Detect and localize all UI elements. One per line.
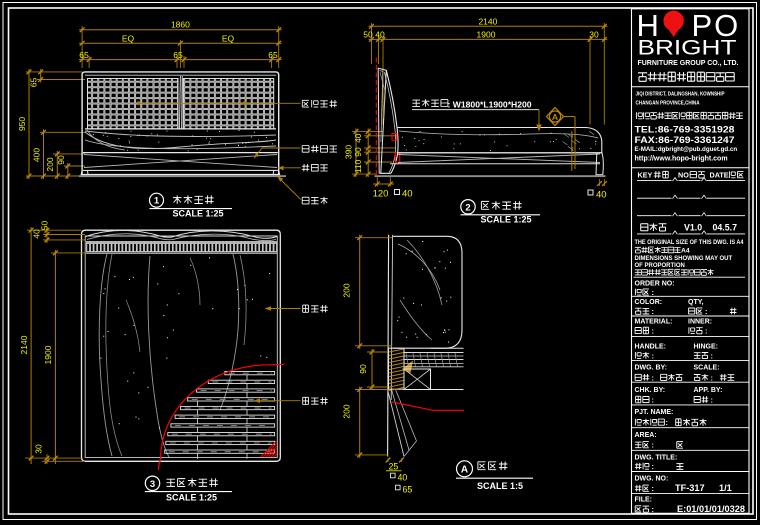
svg-text:65: 65 — [29, 78, 39, 88]
svg-text:400: 400 — [32, 148, 42, 162]
svg-text:SCALE 1:25: SCALE 1:25 — [166, 493, 217, 503]
svg-text::: : — [652, 441, 654, 450]
svg-text:THE ORIGINAL SIZE OF THIS DWG.: THE ORIGINAL SIZE OF THIS DWG. IS A4 — [635, 240, 745, 246]
svg-text:3: 3 — [150, 479, 155, 490]
svg-text:90: 90 — [353, 147, 363, 157]
svg-text:90: 90 — [56, 155, 66, 165]
svg-text:E-MAIL:dgbright@pub.dguet.gd.c: E-MAIL:dgbright@pub.dguet.gd.cn — [635, 146, 738, 153]
svg-text:CHANGAN PROVINCE,CHINA: CHANGAN PROVINCE,CHINA — [636, 101, 701, 107]
svg-text::: : — [652, 373, 654, 382]
svg-text::: : — [652, 307, 654, 316]
svg-text:HANDLE:: HANDLE: — [635, 344, 667, 351]
svg-text:TEL:86-769-3351928: TEL:86-769-3351928 — [635, 125, 735, 135]
svg-text:DWG. NO:: DWG. NO: — [635, 476, 669, 483]
svg-text:: W1800*L1900*H200: : W1800*L1900*H200 — [448, 99, 532, 109]
svg-text:200: 200 — [342, 404, 352, 418]
svg-text::: : — [652, 327, 654, 336]
svg-text:OF PROPORTION: OF PROPORTION — [635, 263, 685, 269]
svg-text:CHK. BY:: CHK. BY: — [635, 387, 666, 394]
svg-text:65: 65 — [79, 50, 89, 60]
svg-text:1900: 1900 — [477, 30, 496, 40]
svg-text:INNER:: INNER: — [688, 319, 712, 326]
svg-text:BRIGHT: BRIGHT — [638, 36, 737, 60]
svg-text:950: 950 — [17, 117, 27, 131]
svg-text:SCALE:: SCALE: — [694, 364, 720, 371]
svg-text:EQ: EQ — [122, 34, 135, 44]
svg-text:65: 65 — [173, 50, 183, 60]
svg-text:40: 40 — [375, 30, 385, 40]
svg-text:SCALE 1:25: SCALE 1:25 — [481, 215, 532, 225]
svg-text:NO: NO — [678, 171, 689, 180]
svg-text:QTY,: QTY, — [688, 299, 704, 306]
svg-text:SCALE 1:5: SCALE 1:5 — [477, 481, 523, 491]
svg-text:DWG. BY:: DWG. BY: — [635, 364, 668, 371]
svg-text:40: 40 — [353, 133, 363, 143]
svg-text::: : — [705, 327, 707, 336]
svg-text::: : — [652, 505, 654, 514]
svg-text:2140: 2140 — [19, 335, 29, 354]
svg-text:65: 65 — [268, 50, 278, 60]
svg-text::: : — [652, 396, 654, 405]
svg-text:DATE: DATE — [710, 171, 729, 180]
svg-text:1900: 1900 — [43, 345, 53, 364]
svg-text::: : — [652, 484, 654, 493]
svg-text:1/1: 1/1 — [719, 483, 732, 493]
svg-text:30: 30 — [589, 30, 599, 40]
svg-text:MATERIAL:: MATERIAL: — [635, 319, 673, 326]
svg-text:120: 120 — [373, 189, 389, 200]
svg-text:390: 390 — [344, 145, 354, 159]
svg-text:HINGE:: HINGE: — [694, 344, 719, 351]
svg-text::: : — [652, 462, 654, 471]
svg-text:COLOR:: COLOR: — [635, 299, 663, 306]
svg-text:TF-317: TF-317 — [675, 483, 705, 493]
svg-text:PJT. NAME:: PJT. NAME: — [635, 409, 674, 416]
svg-text:SCALE 1:25: SCALE 1:25 — [173, 208, 224, 218]
svg-text:200: 200 — [45, 157, 55, 171]
svg-text:1860: 1860 — [171, 20, 190, 30]
svg-text:ORDER NO:: ORDER NO: — [635, 281, 675, 288]
svg-text:A4: A4 — [681, 247, 690, 254]
svg-text:FILE:: FILE: — [635, 496, 653, 503]
svg-text::: : — [652, 288, 654, 297]
svg-text::: : — [711, 351, 713, 360]
svg-text:V1.0: V1.0 — [684, 223, 702, 233]
svg-text:http://www.hopo-bright.com: http://www.hopo-bright.com — [635, 156, 728, 163]
svg-text:110: 110 — [353, 159, 363, 173]
svg-text:A: A — [552, 112, 558, 122]
svg-text:30: 30 — [34, 444, 44, 454]
svg-text:200: 200 — [342, 283, 352, 297]
svg-text:40: 40 — [402, 189, 413, 200]
svg-text::: : — [711, 373, 713, 382]
svg-text:1: 1 — [154, 196, 160, 207]
svg-text:E:01/01/01/0328: E:01/01/01/0328 — [677, 504, 745, 514]
svg-text:40: 40 — [596, 190, 607, 201]
svg-text::: : — [711, 396, 713, 405]
svg-text:50: 50 — [363, 30, 373, 40]
svg-text:APP. BY:: APP. BY: — [694, 387, 723, 394]
svg-text:KEY: KEY — [638, 171, 653, 180]
svg-text:65: 65 — [403, 484, 413, 494]
svg-text:2: 2 — [465, 202, 470, 213]
svg-text:AREA:: AREA: — [635, 432, 657, 439]
svg-text:2140: 2140 — [478, 16, 497, 26]
svg-text:90: 90 — [358, 364, 368, 374]
svg-text:DWG. TITLE:: DWG. TITLE: — [635, 454, 678, 461]
svg-text::: : — [652, 351, 654, 360]
svg-text:EQ: EQ — [222, 34, 235, 44]
svg-text:FAX:86-769-3361247: FAX:86-769-3361247 — [635, 135, 735, 145]
svg-text::: : — [666, 418, 668, 427]
svg-text:A: A — [461, 465, 468, 476]
svg-text:FURNITURE GROUP CO., LTD.: FURNITURE GROUP CO., LTD. — [638, 58, 739, 67]
svg-text:JIQI DISTRICT, DALINGSHAN, KOW: JIQI DISTRICT, DALINGSHAN, KOWNSHIP — [636, 91, 725, 97]
svg-text:DIMENSIONS SHOWING MAY OUT: DIMENSIONS SHOWING MAY OUT — [635, 256, 733, 262]
svg-text:25: 25 — [389, 461, 399, 471]
svg-text::: : — [705, 307, 707, 316]
svg-text:50: 50 — [40, 221, 50, 231]
svg-text:40: 40 — [398, 472, 408, 482]
svg-text:04.5.7: 04.5.7 — [713, 223, 738, 233]
